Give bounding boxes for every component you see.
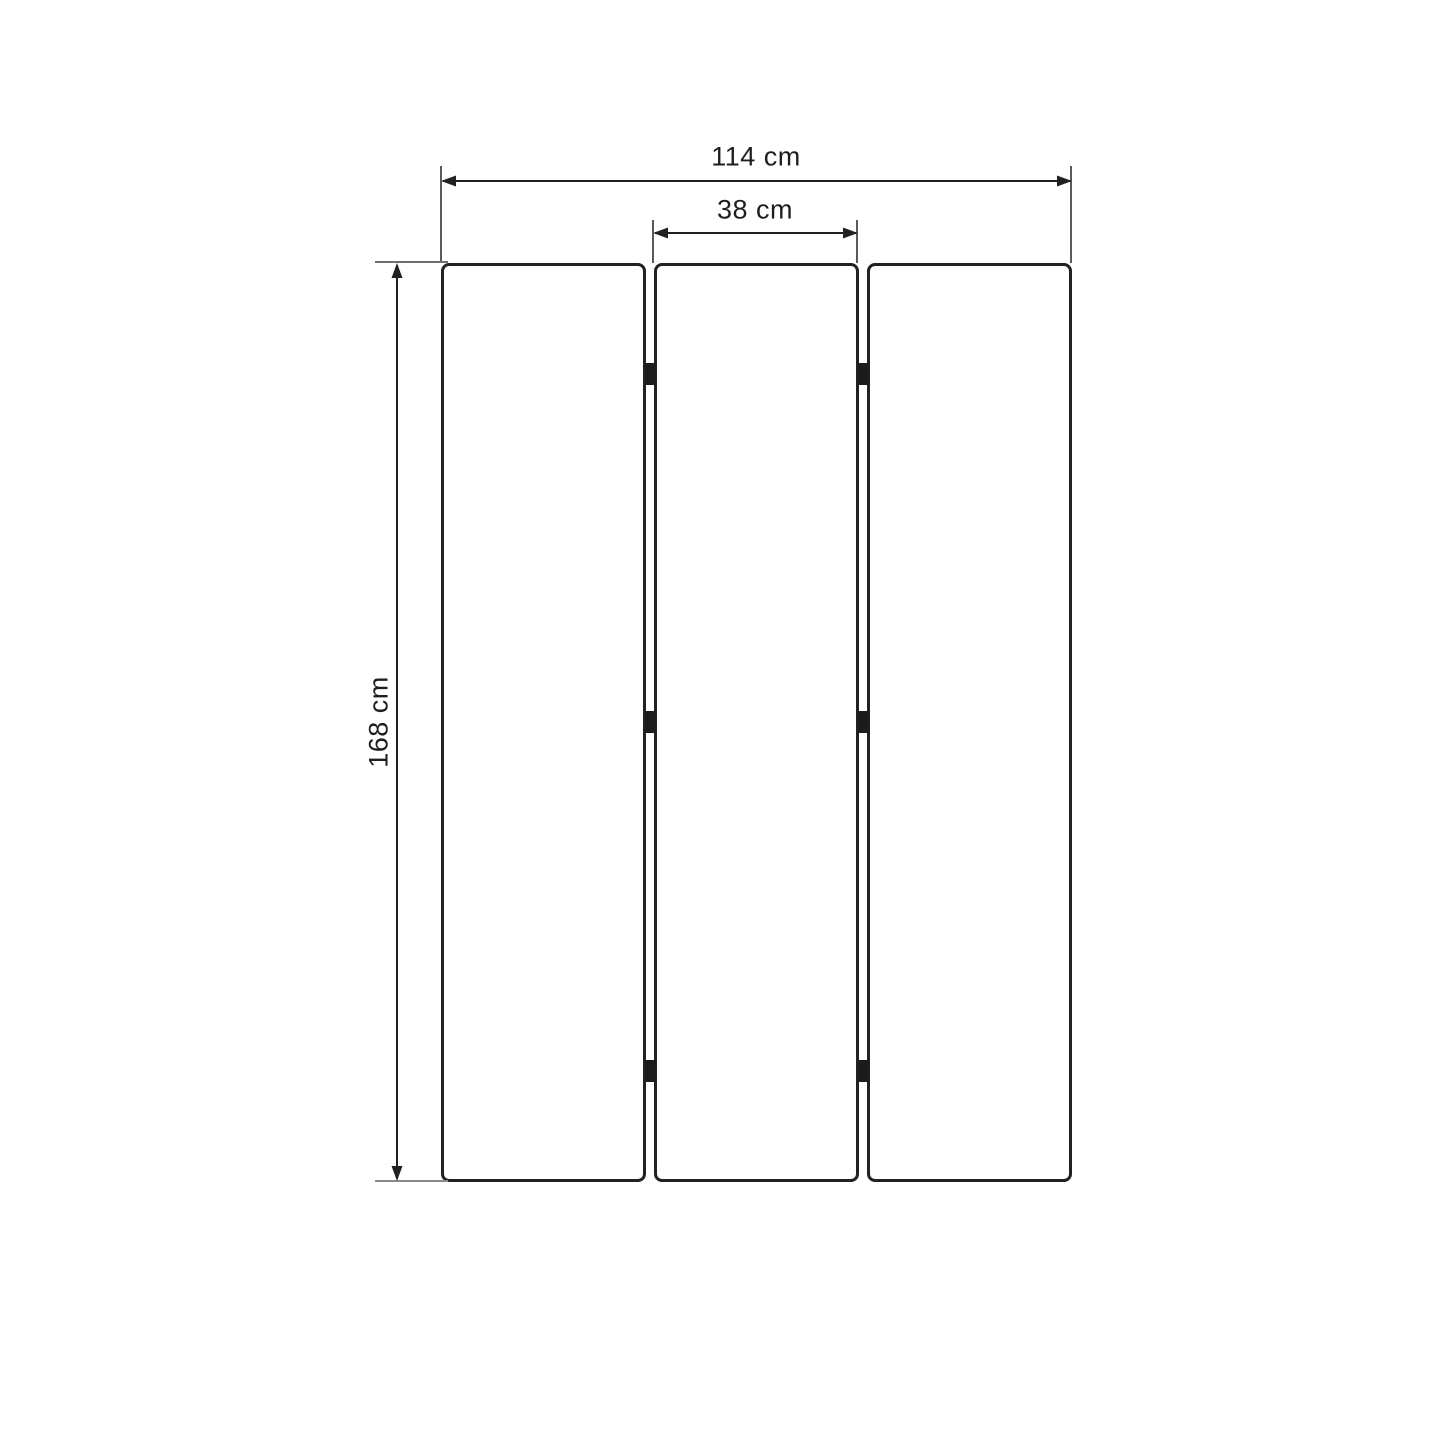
arrowhead-left: [653, 228, 668, 239]
panel-width-label: 38 cm: [717, 195, 793, 226]
hinge-left-gap-bottom: [645, 1060, 656, 1082]
arrowhead-right: [1057, 176, 1072, 187]
arrowhead-top: [392, 263, 403, 278]
hinge-right-gap-middle: [858, 711, 869, 733]
panel-middle: [654, 263, 859, 1182]
arrowhead-left: [441, 176, 456, 187]
height-label: 168 cm: [364, 676, 395, 768]
hinge-right-gap-top: [858, 363, 869, 385]
hinge-right-gap-bottom: [858, 1060, 869, 1082]
hinge-left-gap-middle: [645, 711, 656, 733]
panel-left: [441, 263, 646, 1182]
arrowhead-bottom: [392, 1166, 403, 1181]
total-width-label: 114 cm: [711, 142, 801, 173]
dimension-diagram-canvas: 114 cm 38 cm 168 cm: [0, 0, 1445, 1445]
panel-right: [867, 263, 1072, 1182]
arrowhead-right: [843, 228, 858, 239]
total-width-dimension-line: [441, 170, 1072, 192]
hinge-left-gap-top: [645, 363, 656, 385]
